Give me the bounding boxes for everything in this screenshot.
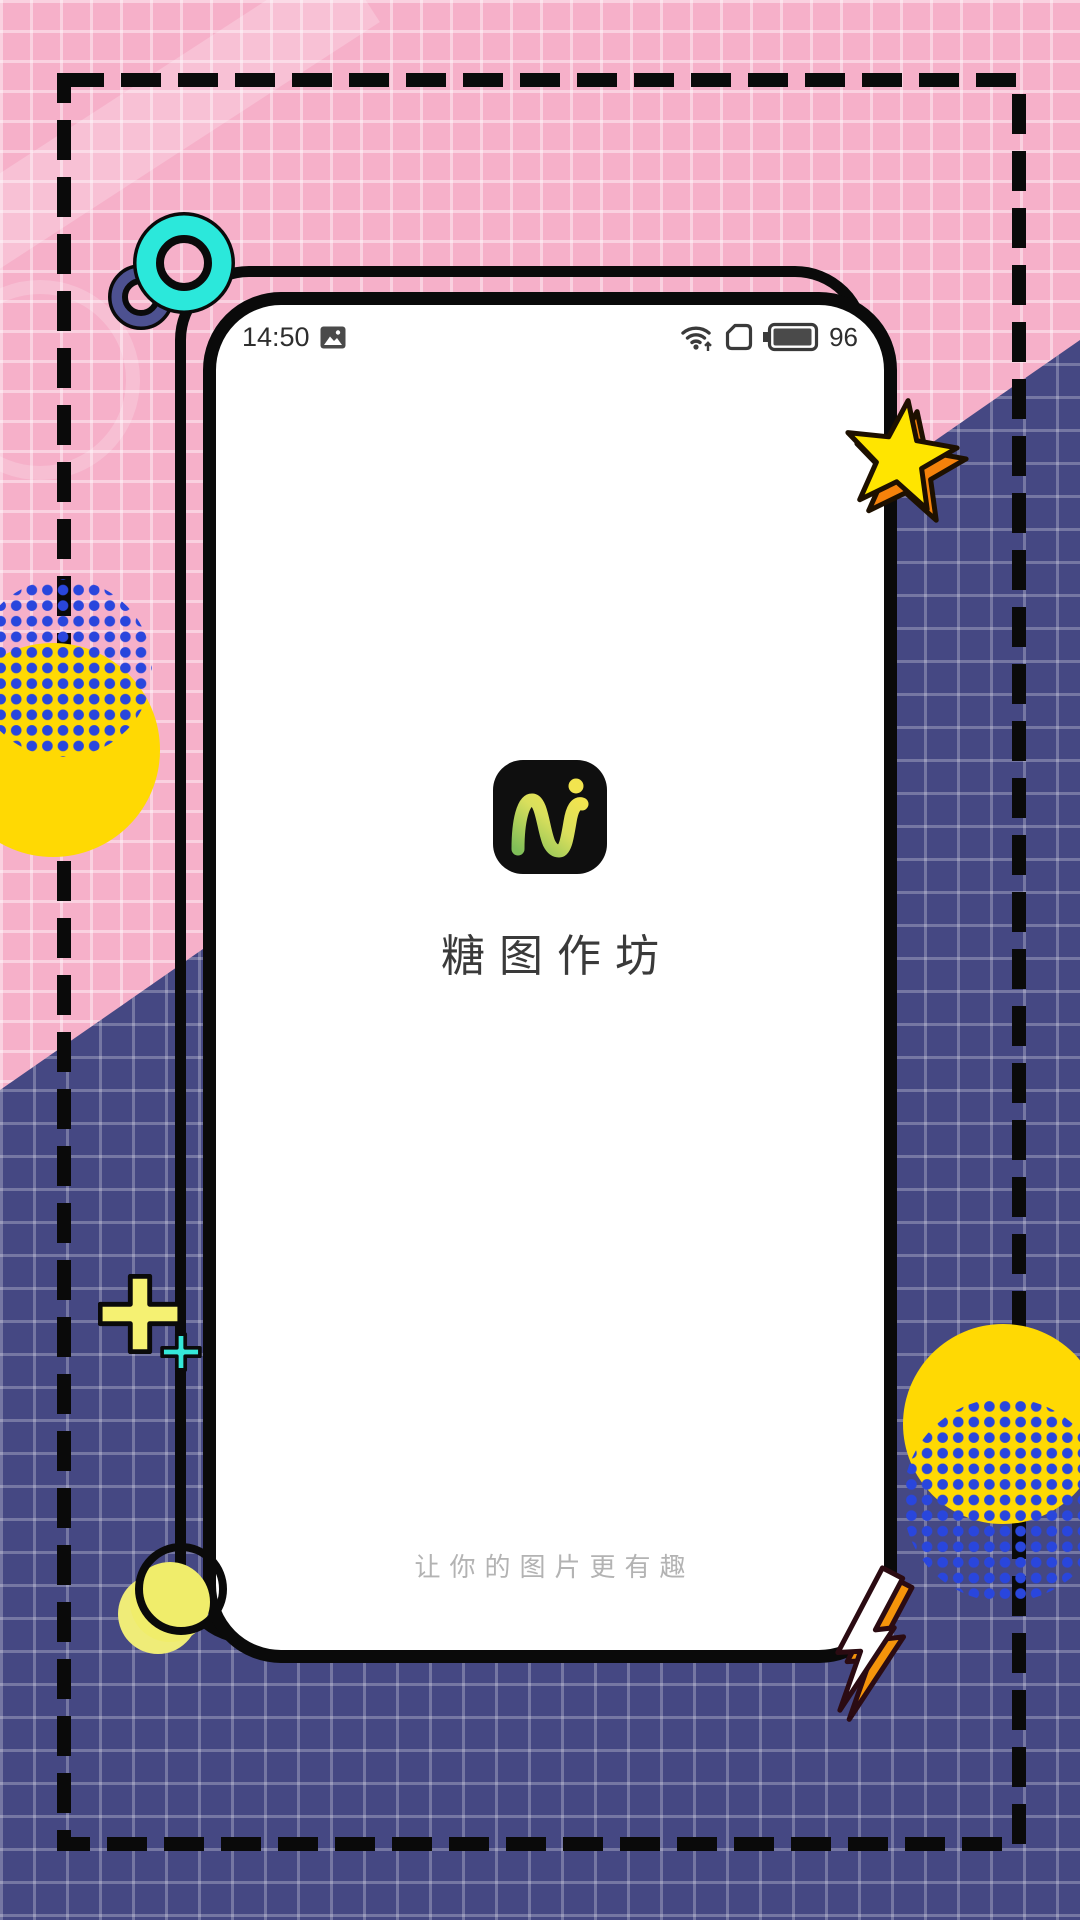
app-icon bbox=[493, 760, 607, 874]
plus-small-cyan bbox=[160, 1332, 202, 1372]
splash-screenshot: 14:50 bbox=[0, 0, 1080, 1920]
app-tagline: 让你的图片更有趣 bbox=[216, 1547, 884, 1584]
battery-level: 96 bbox=[829, 322, 858, 353]
sim-card-icon bbox=[725, 323, 753, 351]
photo-icon bbox=[320, 326, 346, 349]
app-branding: 糖图作坊 bbox=[216, 760, 884, 984]
lightning-bolt-3d-decoration bbox=[824, 1562, 949, 1734]
battery-icon bbox=[763, 322, 819, 352]
phone-mockup: 14:50 bbox=[203, 292, 897, 1663]
status-bar: 14:50 bbox=[216, 319, 884, 355]
app-logo-m-icon bbox=[500, 767, 600, 867]
app-name: 糖图作坊 bbox=[216, 920, 884, 984]
wifi-signal-icon bbox=[681, 322, 715, 352]
yellow-circle-corner bbox=[112, 1540, 232, 1670]
status-time: 14:50 bbox=[242, 322, 310, 353]
teal-ring bbox=[130, 209, 238, 317]
star-3d-decoration bbox=[838, 396, 980, 536]
